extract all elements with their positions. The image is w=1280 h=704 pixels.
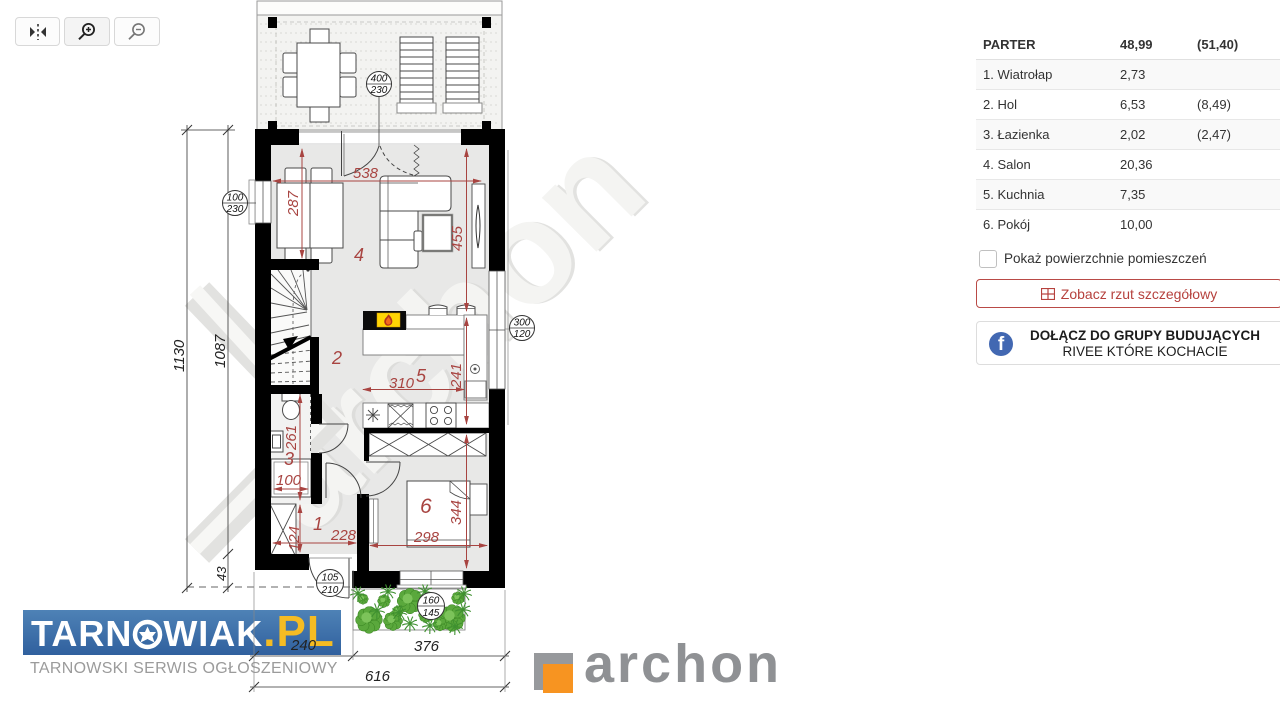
svg-text:400: 400: [371, 74, 388, 85]
svg-text:160: 160: [423, 596, 440, 607]
svg-text:3: 3: [284, 449, 294, 469]
svg-text:43: 43: [214, 566, 229, 581]
svg-text:2: 2: [331, 348, 342, 368]
svg-text:616: 616: [365, 668, 391, 685]
svg-text:1: 1: [313, 514, 323, 534]
svg-text:100: 100: [276, 472, 302, 489]
svg-text:376: 376: [414, 638, 440, 655]
svg-text:230: 230: [370, 85, 388, 96]
svg-text:4: 4: [354, 245, 364, 265]
svg-text:100: 100: [227, 193, 244, 204]
svg-text:124: 124: [286, 526, 303, 551]
svg-text:120: 120: [514, 329, 531, 340]
svg-text:230: 230: [226, 204, 244, 215]
svg-text:240: 240: [290, 637, 317, 654]
svg-text:241: 241: [448, 363, 465, 389]
svg-text:228: 228: [330, 527, 357, 544]
svg-text:538: 538: [353, 165, 379, 182]
svg-text:1087: 1087: [212, 334, 229, 368]
svg-text:287: 287: [285, 190, 302, 217]
svg-text:298: 298: [413, 529, 440, 546]
svg-text:455: 455: [449, 225, 466, 251]
svg-text:1130: 1130: [171, 339, 188, 372]
svg-text:261: 261: [283, 425, 300, 451]
svg-text:300: 300: [514, 318, 531, 329]
svg-text:145: 145: [423, 608, 440, 619]
svg-text:210: 210: [321, 585, 339, 596]
svg-text:344: 344: [448, 500, 465, 525]
svg-text:105: 105: [322, 573, 339, 584]
svg-text:310: 310: [389, 375, 415, 392]
svg-text:6: 6: [420, 495, 432, 518]
svg-text:5: 5: [416, 366, 427, 386]
